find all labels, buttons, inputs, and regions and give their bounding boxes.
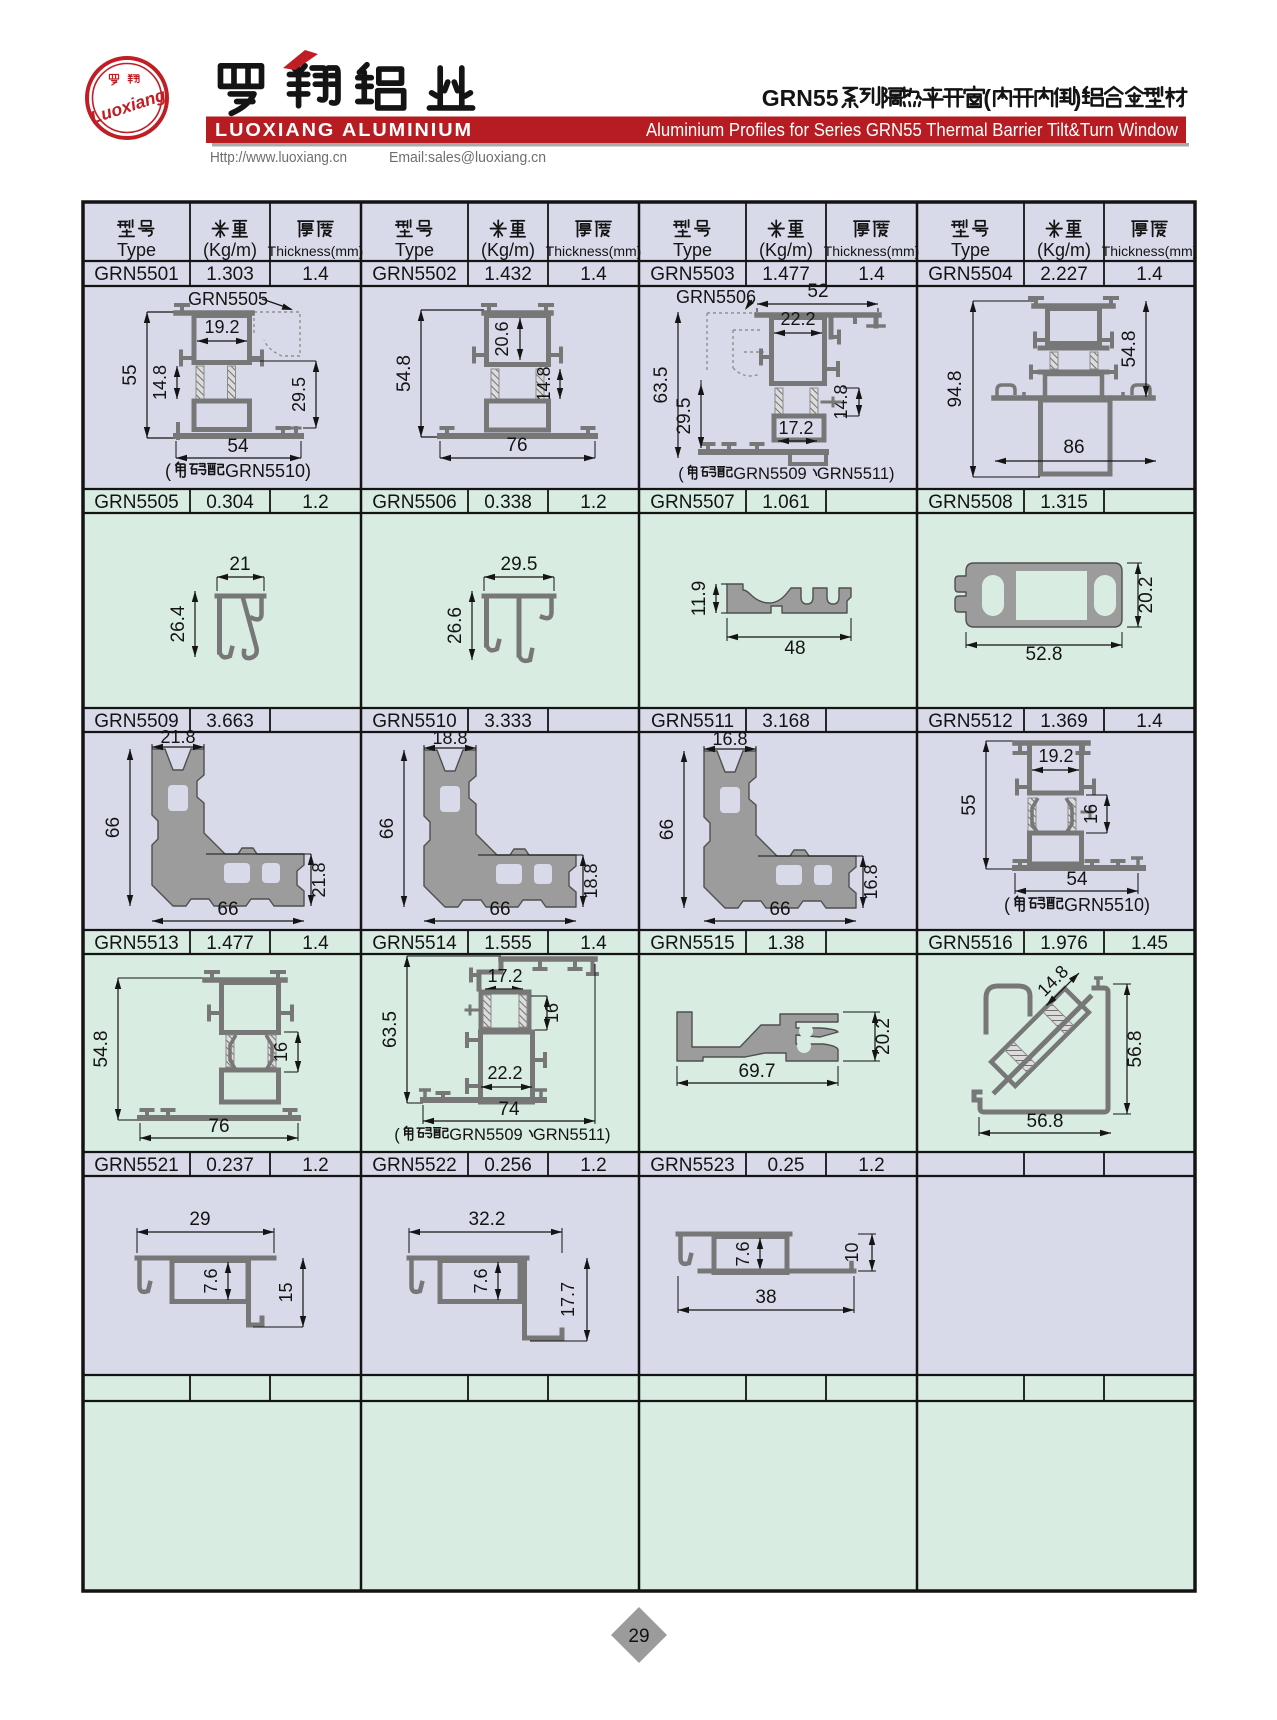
svg-text:1.432: 1.432 [484, 264, 532, 285]
svg-text:(: ( [394, 1126, 400, 1144]
svg-text:Type: Type [117, 240, 156, 260]
svg-text:20.2: 20.2 [873, 1018, 894, 1055]
svg-text:Thickness(mm): Thickness(mm) [1102, 243, 1198, 259]
svg-text:76: 76 [208, 1116, 229, 1137]
svg-text:GRN5513: GRN5513 [94, 933, 179, 954]
svg-text:GRN5510): GRN5510) [225, 461, 311, 481]
svg-text:): ) [1074, 85, 1082, 111]
svg-text:1.4: 1.4 [580, 933, 607, 954]
svg-text:1.369: 1.369 [1040, 711, 1088, 732]
svg-text:14.8: 14.8 [534, 366, 554, 401]
svg-text:1.2: 1.2 [580, 1155, 606, 1176]
svg-text:(: ( [1004, 895, 1010, 915]
svg-text:1.477: 1.477 [206, 933, 254, 954]
svg-text:GRN5504: GRN5504 [928, 264, 1013, 285]
svg-text:66: 66 [657, 819, 678, 840]
svg-text:55: 55 [959, 794, 980, 815]
svg-text:Type: Type [951, 240, 990, 260]
svg-text:10: 10 [842, 1242, 862, 1262]
svg-text:1.555: 1.555 [484, 933, 532, 954]
svg-text:15: 15 [276, 1282, 296, 1302]
svg-text:Email:sales@luoxiang.cn: Email:sales@luoxiang.cn [389, 150, 546, 166]
svg-text:7.6: 7.6 [733, 1241, 753, 1266]
svg-text:1.2: 1.2 [858, 1155, 884, 1176]
svg-text:GRN5516: GRN5516 [928, 933, 1013, 954]
svg-text:32.2: 32.2 [469, 1209, 506, 1230]
svg-text:3.168: 3.168 [762, 711, 810, 732]
svg-text:16.8: 16.8 [861, 864, 881, 899]
svg-text:GRN5506: GRN5506 [676, 287, 756, 307]
svg-text:7.6: 7.6 [201, 1268, 221, 1293]
svg-text:22.2: 22.2 [780, 309, 815, 329]
svg-text:1.2: 1.2 [302, 1155, 328, 1176]
svg-text:18.8: 18.8 [432, 728, 467, 748]
svg-text:(: ( [165, 461, 171, 481]
svg-text:21: 21 [229, 554, 250, 575]
svg-text:GRN5501: GRN5501 [94, 264, 179, 285]
svg-text:18.8: 18.8 [581, 863, 601, 898]
svg-text:20.2: 20.2 [1136, 577, 1157, 614]
svg-text:(Kg/m): (Kg/m) [1037, 240, 1091, 260]
svg-text:54: 54 [1066, 869, 1088, 890]
svg-text:GRN5511): GRN5511) [533, 1126, 611, 1144]
svg-text:GRN5512: GRN5512 [928, 711, 1013, 732]
svg-text:17.7: 17.7 [558, 1282, 578, 1317]
svg-text:66: 66 [769, 899, 790, 920]
svg-text:1.477: 1.477 [762, 264, 810, 285]
svg-text:(Kg/m): (Kg/m) [759, 240, 813, 260]
svg-text:1.061: 1.061 [762, 492, 810, 513]
svg-text:16: 16 [542, 1003, 562, 1023]
svg-text:Type: Type [673, 240, 712, 260]
svg-text:GRN5522: GRN5522 [372, 1155, 457, 1176]
svg-text:3.333: 3.333 [484, 711, 532, 732]
svg-text:22.2: 22.2 [487, 1063, 522, 1083]
svg-text:3.663: 3.663 [206, 711, 254, 732]
svg-text:14.8: 14.8 [150, 365, 170, 400]
svg-text:(Kg/m): (Kg/m) [481, 240, 535, 260]
svg-text:0.256: 0.256 [484, 1155, 532, 1176]
svg-text:48: 48 [784, 638, 805, 659]
svg-text:(: ( [983, 85, 991, 111]
svg-text:54.8: 54.8 [1119, 331, 1140, 368]
svg-text:1.2: 1.2 [580, 492, 606, 513]
svg-text:1.976: 1.976 [1040, 933, 1088, 954]
svg-text:54.8: 54.8 [394, 355, 415, 392]
svg-text:GRN55: GRN55 [762, 85, 839, 111]
svg-text:16: 16 [1081, 804, 1101, 824]
svg-text:1.303: 1.303 [206, 264, 254, 285]
svg-text:1.45: 1.45 [1131, 933, 1168, 954]
svg-text:Thickness(mm): Thickness(mm) [268, 243, 364, 259]
svg-text:0.25: 0.25 [768, 1155, 805, 1176]
svg-text:1.4: 1.4 [302, 264, 329, 285]
svg-text:GRN5506: GRN5506 [372, 492, 457, 513]
svg-text:Http://www.luoxiang.cn: Http://www.luoxiang.cn [210, 150, 347, 166]
svg-text:21.8: 21.8 [160, 727, 195, 747]
svg-text:GRN5515: GRN5515 [650, 933, 735, 954]
svg-text:38: 38 [755, 1287, 776, 1308]
svg-text:GRN5521: GRN5521 [94, 1155, 179, 1176]
svg-text:11.9: 11.9 [689, 581, 710, 617]
svg-text:GRN5509: GRN5509 [733, 465, 806, 483]
svg-text:17.2: 17.2 [487, 966, 522, 986]
svg-text:1.4: 1.4 [1136, 711, 1163, 732]
svg-text:Type: Type [395, 240, 434, 260]
svg-text:Thickness(mm): Thickness(mm) [546, 243, 642, 259]
svg-text:1.4: 1.4 [858, 264, 885, 285]
svg-text:29.5: 29.5 [674, 398, 695, 435]
svg-text:54: 54 [227, 436, 249, 457]
svg-text:GRN5514: GRN5514 [372, 933, 457, 954]
svg-text:GRN5511): GRN5511) [817, 465, 895, 483]
svg-text:63.5: 63.5 [651, 367, 672, 404]
svg-text:17.2: 17.2 [778, 418, 813, 438]
svg-text:56.8: 56.8 [1027, 1111, 1064, 1132]
svg-text:2.227: 2.227 [1040, 264, 1088, 285]
svg-text:GRN5510): GRN5510) [1064, 895, 1150, 915]
svg-text:0.304: 0.304 [206, 492, 254, 513]
svg-text:55: 55 [120, 364, 141, 385]
svg-text:63.5: 63.5 [380, 1011, 401, 1048]
svg-text:56.8: 56.8 [1125, 1031, 1146, 1068]
svg-text:(Kg/m): (Kg/m) [203, 240, 257, 260]
svg-text:20.6: 20.6 [492, 321, 512, 356]
svg-text:66: 66 [489, 899, 510, 920]
svg-text:52: 52 [807, 281, 828, 302]
svg-text:16.8: 16.8 [712, 729, 747, 749]
svg-text:GRN5508: GRN5508 [928, 492, 1013, 513]
svg-text:7.6: 7.6 [471, 1268, 491, 1293]
svg-text:0.237: 0.237 [206, 1155, 254, 1176]
svg-text:0.338: 0.338 [484, 492, 532, 513]
svg-text:74: 74 [498, 1099, 520, 1120]
svg-text:52.8: 52.8 [1026, 644, 1063, 665]
svg-text:GRN5502: GRN5502 [372, 264, 457, 285]
svg-text:1.2: 1.2 [302, 492, 328, 513]
svg-text:Aluminium Profiles for Series: Aluminium Profiles for Series GRN55 Ther… [646, 119, 1179, 140]
svg-text:1.315: 1.315 [1040, 492, 1088, 513]
svg-text:26.4: 26.4 [168, 605, 189, 642]
svg-text:76: 76 [506, 435, 527, 456]
svg-text:GRN5503: GRN5503 [650, 264, 735, 285]
svg-text:Thickness(mm): Thickness(mm) [824, 243, 920, 259]
svg-text:26.6: 26.6 [445, 607, 466, 644]
svg-text:1.4: 1.4 [302, 933, 329, 954]
svg-text:GRN5509: GRN5509 [449, 1126, 522, 1144]
svg-text:66: 66 [377, 818, 398, 839]
svg-text:29: 29 [628, 1626, 649, 1647]
svg-text:GRN5505: GRN5505 [94, 492, 179, 513]
svg-text:94.8: 94.8 [945, 371, 966, 408]
svg-text:GRN5507: GRN5507 [650, 492, 735, 513]
svg-text:69.7: 69.7 [739, 1061, 776, 1082]
svg-text:19.2: 19.2 [204, 317, 239, 337]
svg-text:GRN5523: GRN5523 [650, 1155, 735, 1176]
svg-text:1.4: 1.4 [1136, 264, 1163, 285]
svg-text:19.2: 19.2 [1038, 746, 1073, 766]
svg-text:66: 66 [217, 899, 238, 920]
svg-text:1.4: 1.4 [580, 264, 607, 285]
svg-text:16: 16 [271, 1042, 291, 1062]
svg-text:1.38: 1.38 [768, 933, 805, 954]
svg-text:LUOXIANG ALUMINIUM: LUOXIANG ALUMINIUM [215, 119, 473, 140]
svg-text:29.5: 29.5 [501, 554, 538, 575]
svg-text:29: 29 [189, 1209, 210, 1230]
svg-text:GRN5505: GRN5505 [188, 289, 268, 309]
svg-text:21.8: 21.8 [309, 862, 329, 897]
svg-text:(: ( [678, 465, 684, 483]
svg-text:29.5: 29.5 [289, 377, 309, 412]
svg-text:54.8: 54.8 [91, 1031, 112, 1068]
svg-text:66: 66 [103, 817, 124, 838]
svg-text:86: 86 [1063, 437, 1084, 458]
